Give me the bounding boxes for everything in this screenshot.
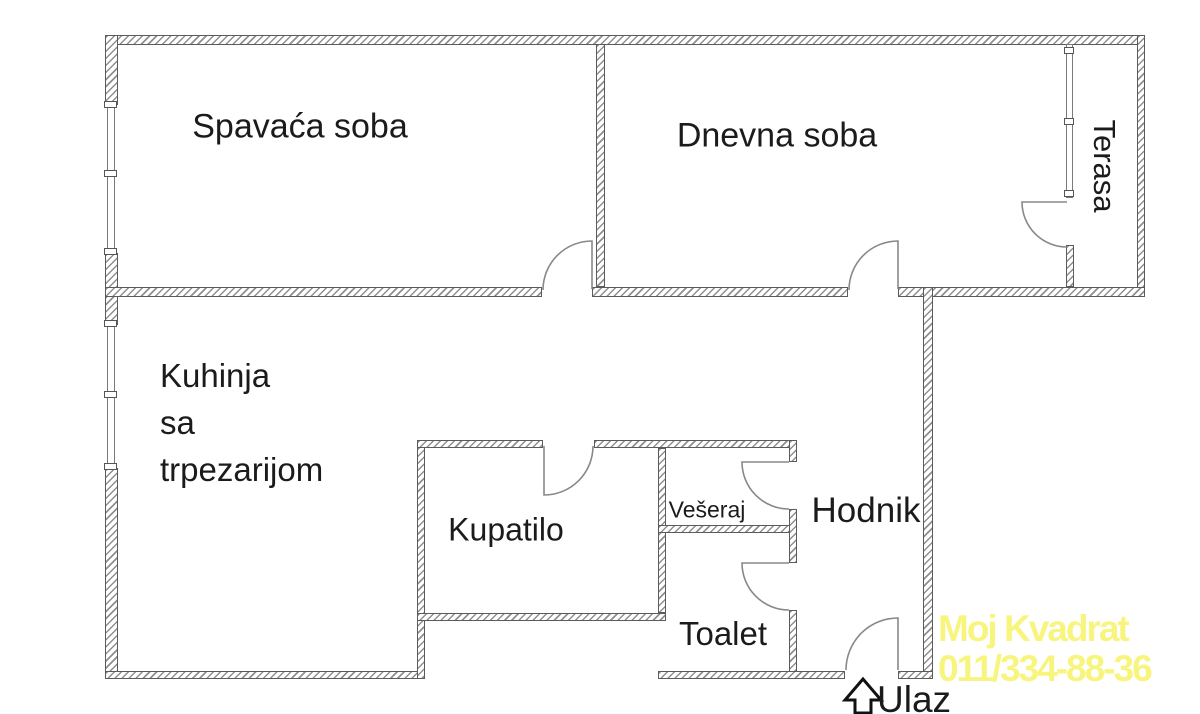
door-toilet <box>742 563 789 610</box>
door-bathroom <box>544 446 593 495</box>
watermark-phone: 011/334-88-36 <box>938 649 1151 689</box>
door-bedroom <box>543 241 592 290</box>
door-terrace <box>1022 202 1067 247</box>
door-entrance <box>846 618 898 670</box>
room-label-bathroom: Kupatilo <box>448 512 564 547</box>
room-label-laundry: Vešeraj <box>669 497 746 522</box>
watermark-brand: Moj Kvadrat <box>938 609 1151 649</box>
watermark: Moj Kvadrat 011/334-88-36 <box>938 609 1151 689</box>
floor-plan: Spavaća soba Dnevna soba Terasa Kuhinja … <box>0 0 1200 714</box>
room-label-hallway: Hodnik <box>812 492 921 531</box>
room-label-living-room: Dnevna soba <box>677 117 877 154</box>
door-living-room <box>849 241 898 290</box>
door-laundry <box>742 462 789 509</box>
room-label-terrace: Terasa <box>1087 119 1121 212</box>
room-label-toilet: Toalet <box>679 616 767 652</box>
up-arrow-icon <box>845 679 881 713</box>
room-label-bedroom: Spavaća soba <box>192 108 408 145</box>
room-label-kitchen: Kuhinja sa trpezarijom <box>160 352 323 493</box>
